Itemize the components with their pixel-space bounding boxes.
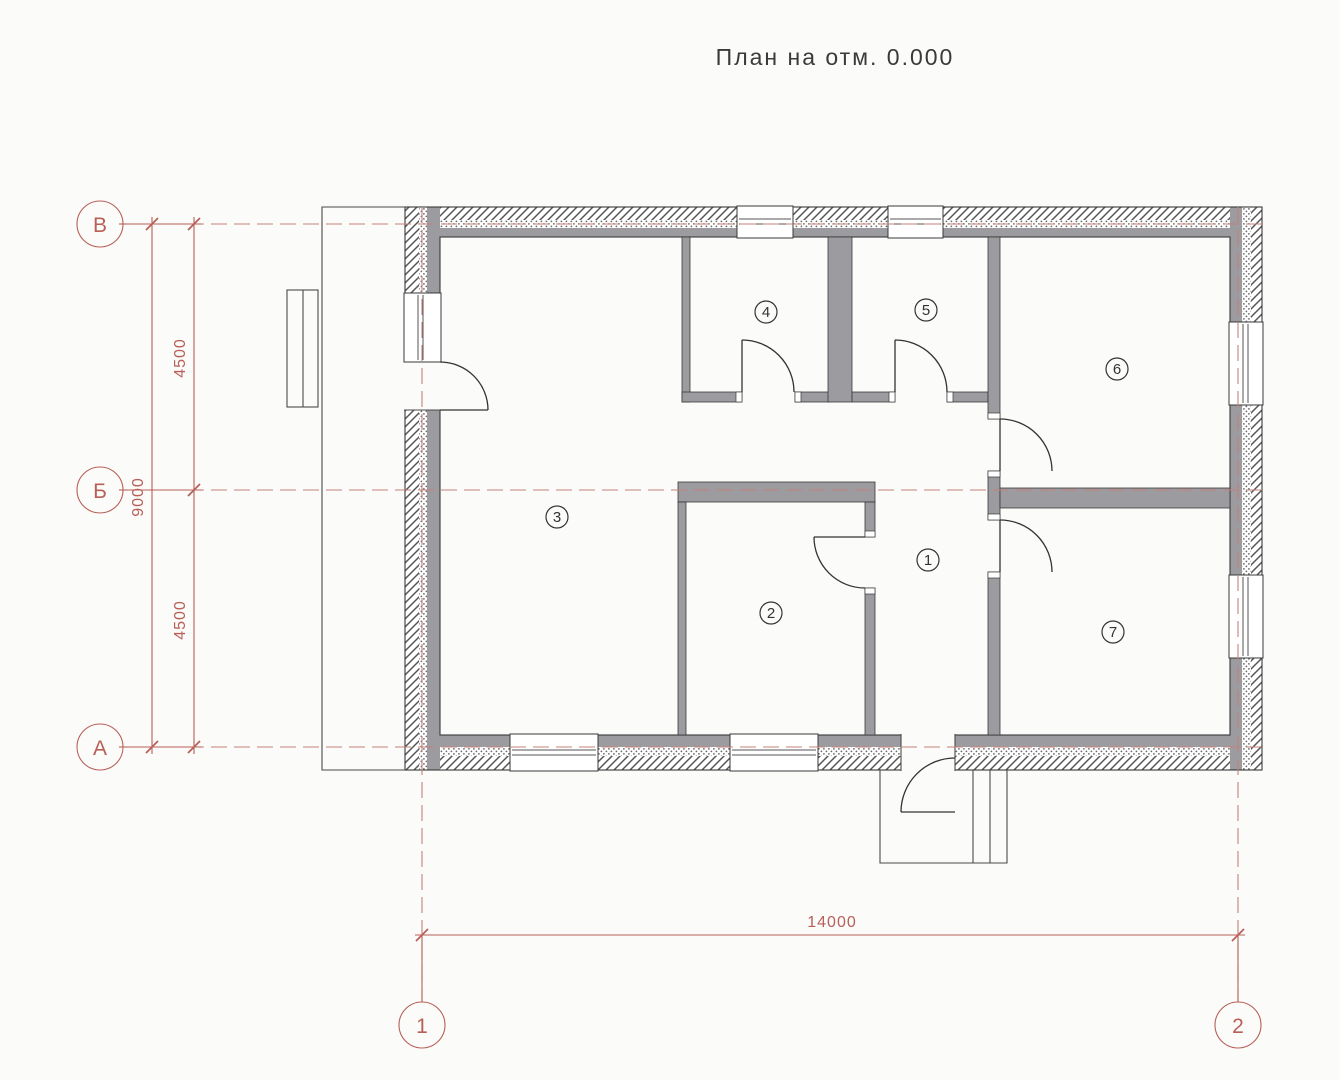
window-top-room5 [888,206,943,238]
page-title: План на отм. 0.000 [716,44,955,70]
room-label-7: 7 [1102,621,1124,643]
room2-east-wall-lower [865,588,875,735]
room5-door-frame [947,392,953,402]
door-room4 [742,340,794,392]
door-left-entrance [440,362,488,410]
room-label-4: 4 [755,301,777,323]
right-wall-insulation-hatch [1251,207,1262,770]
axis-bubbles: В Б А 1 2 [77,201,1261,1048]
left-wall-masonry-dots [419,207,427,770]
axis-label-A: А [93,737,107,760]
axis-label-B: В [93,214,107,237]
floor-plan-page: 9000 4500 4500 14000 В Б А 1 2 1 2 3 [0,0,1339,1080]
door-room6 [1000,419,1052,471]
room4-door-frame [736,392,742,402]
room2-north-wall [678,482,875,502]
svg-text:3: 3 [553,509,561,526]
room-label-5: 5 [915,299,937,321]
room-label-3: 3 [546,506,568,528]
door-room5 [895,340,947,392]
dim-label-lower-segment: 4500 [172,600,189,640]
room7-door-frame [988,572,1000,578]
window-top-room4 [737,206,793,238]
right-wall-masonry-dots [1242,207,1251,770]
room-label-2: 2 [760,602,782,624]
svg-text:4: 4 [762,304,770,321]
svg-text:2: 2 [767,605,775,622]
left-wall-core [427,207,440,770]
room5-door-frame [889,392,895,402]
door-room2 [814,537,865,588]
axis-label-1: 1 [416,1015,428,1038]
partition-room3-room2 [678,502,686,735]
axis-lines [119,207,1262,1002]
dim-label-upper-segment: 4500 [172,338,189,378]
room2-door-frame [865,531,875,537]
right-wall-core [1230,207,1242,770]
dim-label-total-height: 9000 [130,477,147,517]
svg-text:6: 6 [1113,361,1121,378]
interior-walls [678,237,1230,735]
window-bottom-room3 [510,734,598,771]
dim-ticks [146,218,1244,941]
window-right-room7 [1229,575,1263,658]
partition-room3-room4 [682,237,690,402]
floor-plan-drawing: 9000 4500 4500 14000 В Б А 1 2 1 2 3 [0,0,1339,1080]
axis-label-2: 2 [1232,1015,1244,1038]
hall-east-wall-lower [988,572,1000,735]
room6-door-frame [988,413,1000,419]
door-room7 [1000,520,1052,572]
svg-text:1: 1 [924,552,932,569]
top-wall-insulation-hatch [405,207,1262,220]
room4-door-frame [795,392,801,402]
left-wall-insulation-hatch [405,207,419,770]
room7-door-frame [988,514,1000,520]
hall-east-wall-middle [988,471,1000,520]
dim-label-total-width: 14000 [807,914,857,931]
partition-room6-room7 [1000,488,1230,508]
left-porch-outline [322,207,405,770]
window-bottom-room2 [730,734,818,771]
svg-text:5: 5 [922,302,930,319]
partition-room4-room5 [828,237,852,402]
room6-door-frame [988,471,1000,477]
svg-text:7: 7 [1109,624,1117,641]
room4-south-wall-left [682,392,742,402]
bottom-porch-outline [880,770,1007,863]
top-wall-core [405,228,1262,237]
room-label-1: 1 [917,549,939,571]
hall-east-wall-upper [988,237,1000,419]
axis-label-Be: Б [93,480,107,503]
room5-south-wall-left [852,392,895,402]
room2-door-frame [865,588,875,594]
room-label-6: 6 [1106,358,1128,380]
window-right-room6 [1229,322,1263,405]
